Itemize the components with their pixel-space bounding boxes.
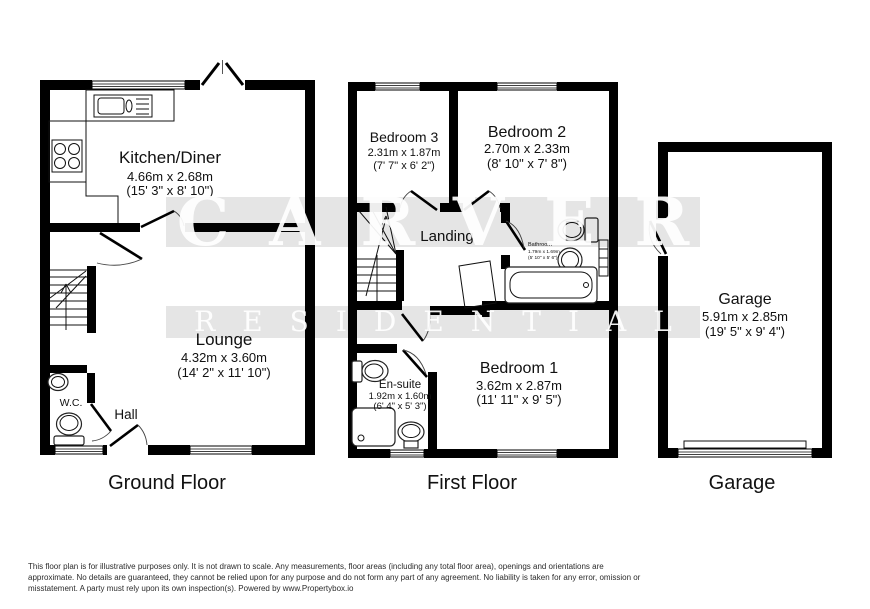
stairs-icon [357,207,396,301]
double-door-icon [202,60,243,85]
room-dims-imperial: (8' 10" x 7' 8") [487,156,567,171]
door-icon [91,404,111,441]
floorplan-drawing: Kitchen/Diner 4.66m x 2.68m (15' 3" x 8'… [0,0,870,560]
room-dims-metric: 4.32m x 3.60m [181,350,267,365]
room-dims-metric: 5.91m x 2.85m [702,309,788,324]
room-label-lounge: Lounge [196,330,253,349]
room-dims-imperial: (15' 3" x 8' 10") [126,183,213,198]
room-dims-metric: 4.66m x 2.68m [127,169,213,184]
garage-door-icon [678,441,812,457]
room-dims-imperial: (7' 7" x 6' 2") [373,160,435,172]
bathtub-icon [505,267,597,303]
disclaimer-line-2: approximate. No details are guaranteed, … [28,572,848,583]
room-label-kitchen: Kitchen/Diner [119,148,221,167]
room-dims-metric: 2.31m x 1.87m [368,147,441,159]
room-label-bedroom3: Bedroom 3 [370,129,439,145]
radiator-icon [599,240,608,276]
room-dims-metric: 1.79m x 1.69m [528,249,560,255]
room-dims-imperial: (5' 10" x 5' 6") [528,255,558,261]
first-floor-plan: Bedroom 3 2.31m x 1.87m (7' 7" x 6' 2") … [348,82,618,494]
window [390,450,424,457]
door-icon [141,211,184,227]
front-door-icon [110,425,147,446]
room-label-ensuite: En-suite [379,379,421,391]
window [497,83,557,90]
shower-icon [352,408,395,446]
floor-title-ground: Ground Floor [108,472,226,494]
room-dims-imperial: (11' 11" x 9' 5") [476,392,561,407]
room-label-landing: Landing [420,228,473,245]
door-icon [400,191,437,210]
kitchen-sink-icon [94,95,152,117]
room-label-bedroom1: Bedroom 1 [480,360,558,377]
room-label-hall: Hall [114,407,137,422]
disclaimer-line-3: misstatement. A party must rely upon its… [28,583,848,594]
stairs-icon [50,270,87,330]
room-dims-imperial: (14' 2" x 11' 10") [177,365,270,380]
disclaimer: This floor plan is for illustrative purp… [28,561,848,594]
room-label-wc: W.C. [60,397,83,409]
door-icon [402,314,430,341]
door-icon [97,233,142,265]
window [375,83,420,90]
room-dims-metric: 3.62m x 2.87m [476,378,562,393]
room-label-bathroom: Bathroom [528,242,552,248]
floor-title-garage: Garage [709,472,776,494]
window [190,446,252,454]
door-icon [403,350,427,377]
room-dims-imperial: (6' 4" x 5' 3") [373,401,426,412]
door-icon [506,221,525,250]
disclaimer-line-1: This floor plan is for illustrative purp… [28,561,848,572]
sink-icon [398,422,424,448]
sink-icon [48,374,68,391]
toilet-icon [558,218,598,242]
floorplan-page: Kitchen/Diner 4.66m x 2.68m (15' 3" x 8'… [0,0,870,609]
garage-plan: Garage 5.91m x 2.85m (19' 5" x 9' 4") Ga… [649,142,832,494]
room-dims-imperial: (19' 5" x 9' 4") [705,324,785,339]
window [497,450,557,457]
door-icon [464,191,500,210]
room-label-garage: Garage [718,291,771,308]
room-dims-metric: 2.70m x 2.33m [484,141,570,156]
cupboard-door [459,261,496,308]
ground-floor-plan: Kitchen/Diner 4.66m x 2.68m (15' 3" x 8'… [40,60,315,494]
toilet-icon [54,413,84,445]
window [92,81,185,89]
room-label-bedroom2: Bedroom 2 [488,124,566,141]
window [55,446,103,454]
hob-icon [52,140,82,172]
floor-title-first: First Floor [427,472,517,494]
door-icon [649,221,666,254]
